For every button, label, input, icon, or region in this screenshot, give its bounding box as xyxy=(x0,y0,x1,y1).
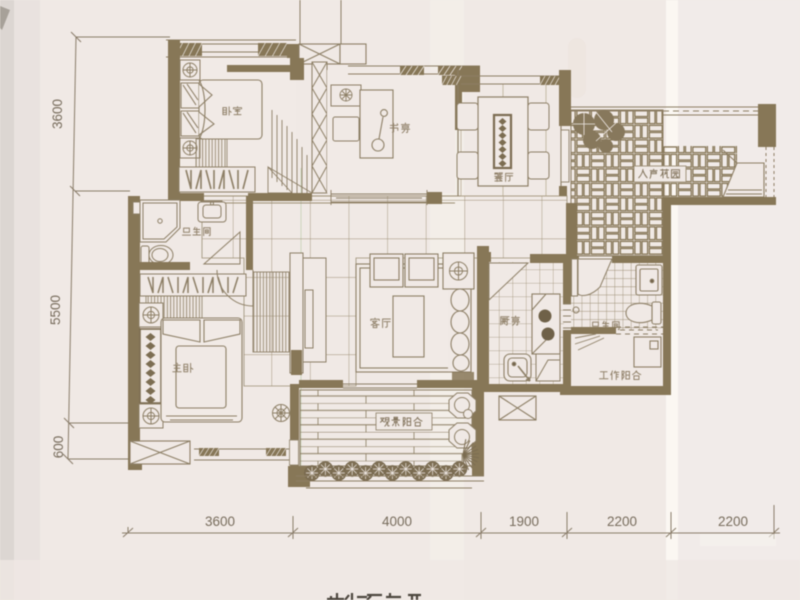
svg-text:4000: 4000 xyxy=(382,514,412,529)
svg-text:2200: 2200 xyxy=(607,514,637,529)
svg-text:2200: 2200 xyxy=(718,514,748,529)
svg-text:5500: 5500 xyxy=(48,295,63,325)
svg-text:3600: 3600 xyxy=(205,514,235,529)
svg-text:3600: 3600 xyxy=(50,99,65,129)
svg-text:1900: 1900 xyxy=(509,514,539,529)
svg-text:600: 600 xyxy=(51,436,66,459)
